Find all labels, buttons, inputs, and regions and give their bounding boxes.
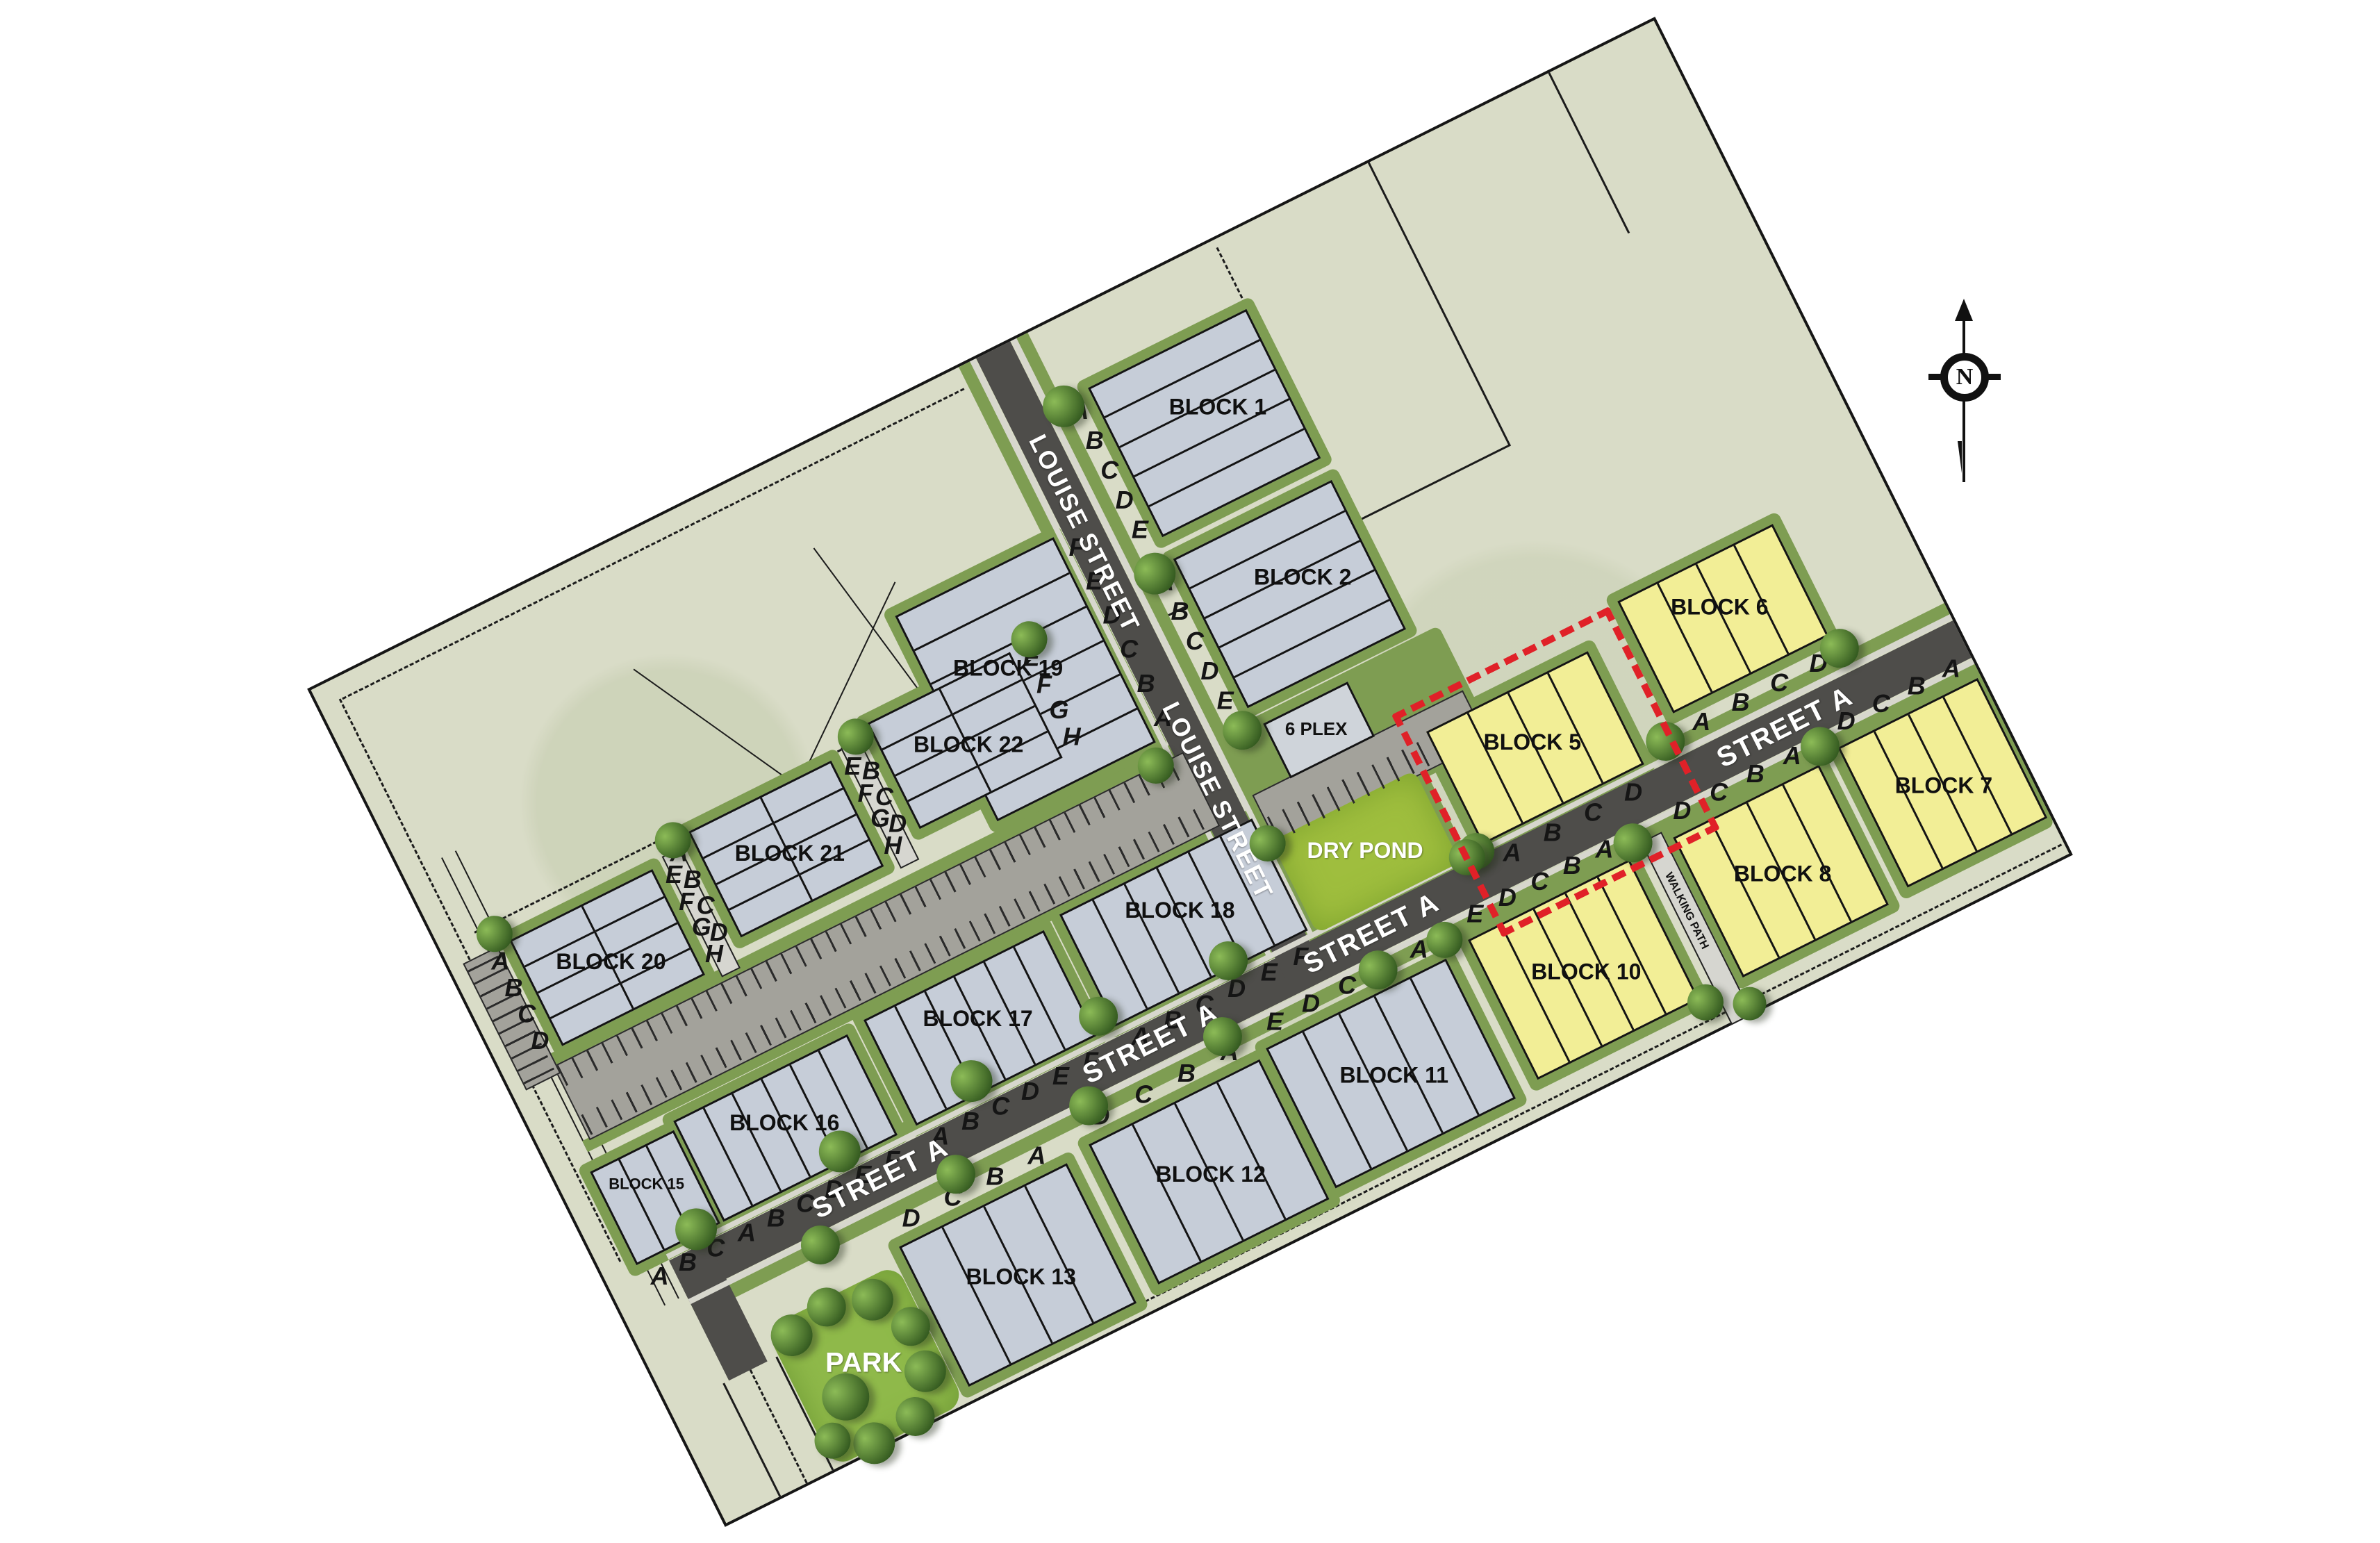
- block-22-lot-letter: G: [1049, 695, 1068, 725]
- block-1-name: BLOCK 1: [1169, 394, 1266, 420]
- block-16-lot-letter: B: [767, 1203, 785, 1232]
- north-label: N: [1956, 364, 1974, 390]
- block-22-name: BLOCK 22: [914, 732, 1023, 757]
- block-21-lot-letter: D: [710, 917, 728, 946]
- block-2-lot-letter: C: [1186, 627, 1204, 656]
- block-15-lot-letter: B: [679, 1248, 697, 1277]
- block-16-lot-letter: A: [738, 1218, 756, 1247]
- park-label: PARK: [825, 1347, 902, 1378]
- north-arrow-circle: N: [1940, 353, 1989, 402]
- block-7-name: BLOCK 7: [1895, 773, 1992, 798]
- block-21-lot-letter: B: [684, 864, 702, 893]
- north-arrow-head-icon: [1955, 299, 1973, 321]
- block-13-name: BLOCK 13: [966, 1264, 1076, 1289]
- block-1-lot-letter: D: [1116, 486, 1134, 515]
- block-13-lot-letter: D: [902, 1203, 920, 1232]
- block-16-name: BLOCK 16: [729, 1110, 839, 1136]
- block-17-lot-letter: D: [1021, 1076, 1039, 1105]
- block-20-lot-letter: B: [504, 973, 522, 1002]
- block-17-name: BLOCK 17: [923, 1006, 1032, 1032]
- block-12-name: BLOCK 12: [1156, 1162, 1266, 1187]
- block-18-name: BLOCK 18: [1125, 897, 1234, 923]
- block-22-lot-letter: H: [1063, 722, 1081, 751]
- block-7-lot-letter: C: [1872, 688, 1890, 718]
- block-11-lot-letter: E: [1266, 1007, 1283, 1036]
- block-7-lot-letter: A: [1942, 654, 1960, 683]
- block-1-lot-letter: B: [1086, 426, 1104, 455]
- block-22-lot-letter: D: [889, 809, 907, 838]
- block-11-lot-letter: A: [1410, 934, 1428, 964]
- block-17-lot-letter: E: [1052, 1062, 1068, 1091]
- block-17-lot-letter: B: [961, 1106, 980, 1135]
- block-11-lot-letter: C: [1338, 971, 1356, 1000]
- block-17-lot-letter: C: [991, 1091, 1009, 1121]
- block-20-lot-letter: D: [531, 1025, 549, 1055]
- block-6-lot-letter: C: [1770, 668, 1788, 698]
- block-20-name: BLOCK 20: [556, 949, 666, 975]
- block-2-lot-letter: B: [1171, 597, 1189, 626]
- block-11-lot-letter: D: [1302, 989, 1320, 1018]
- parcel-line-2: [1548, 72, 1630, 233]
- subdivision-plan-canvas: ABCDEBLOCK 1ABCDEBLOCK 2ABCDBLOCK 5ABCDB…: [307, 17, 2073, 1527]
- block-8-lot-letter: C: [1710, 777, 1728, 807]
- block-21-name: BLOCK 21: [735, 840, 845, 866]
- block-22-lot-letter: B: [862, 756, 880, 785]
- setback-dashed-line-0: [342, 388, 964, 700]
- north-arrow: N: [1924, 299, 2008, 493]
- block-6-name: BLOCK 6: [1671, 594, 1768, 620]
- dry-pond-label: DRY POND: [1307, 837, 1423, 863]
- block-18-lot-letter: E: [1260, 957, 1277, 987]
- block-12-lot-letter: C: [1134, 1080, 1152, 1109]
- block-6-lot-letter: A: [1692, 707, 1710, 736]
- site-plan-page: { "compass": { "label": "N" }, "streets"…: [0, 0, 2380, 1543]
- block-2-lot-letter: E: [1217, 686, 1234, 715]
- block-21-lot-letter: C: [697, 891, 715, 920]
- block-10-lot-letter: E: [1466, 899, 1483, 928]
- north-arrow-tail: [1958, 441, 1962, 473]
- parcel-line-0: [1368, 162, 1511, 446]
- north-arrow-tick-right: [1988, 374, 2001, 380]
- block-12-lot-letter: B: [1177, 1058, 1196, 1087]
- block-1-lot-letter: E: [1132, 515, 1148, 544]
- block-10-name: BLOCK 10: [1531, 959, 1641, 984]
- block-19-lot-letter: B: [1137, 668, 1155, 698]
- block-8-name: BLOCK 8: [1734, 861, 1831, 886]
- block-8-lot-letter: A: [1783, 741, 1801, 770]
- block-6-lot-letter: B: [1731, 687, 1749, 716]
- block-13-lot-letter: B: [986, 1162, 1004, 1191]
- block-15-name: BLOCK 15: [609, 1175, 684, 1193]
- block-11-name: BLOCK 11: [1340, 1062, 1448, 1088]
- block-13-lot-letter: A: [1028, 1141, 1046, 1170]
- block-2-name: BLOCK 2: [1254, 564, 1351, 590]
- block-20-lot-letter: C: [518, 999, 536, 1028]
- block-22-lot-letter: C: [875, 782, 893, 811]
- block-2-lot-letter: D: [1200, 657, 1218, 686]
- six-plex-label: 6 PLEX: [1285, 718, 1348, 739]
- block-8-lot-letter: B: [1746, 759, 1765, 789]
- block-19-lot-letter: C: [1120, 634, 1138, 663]
- block-1-lot-letter: C: [1100, 456, 1118, 485]
- north-arrow-tick-left: [1928, 374, 1941, 380]
- block-22-lot-letter: F: [1036, 670, 1052, 699]
- block-7-lot-letter: B: [1907, 671, 1925, 700]
- block-15-lot-letter: A: [650, 1262, 668, 1291]
